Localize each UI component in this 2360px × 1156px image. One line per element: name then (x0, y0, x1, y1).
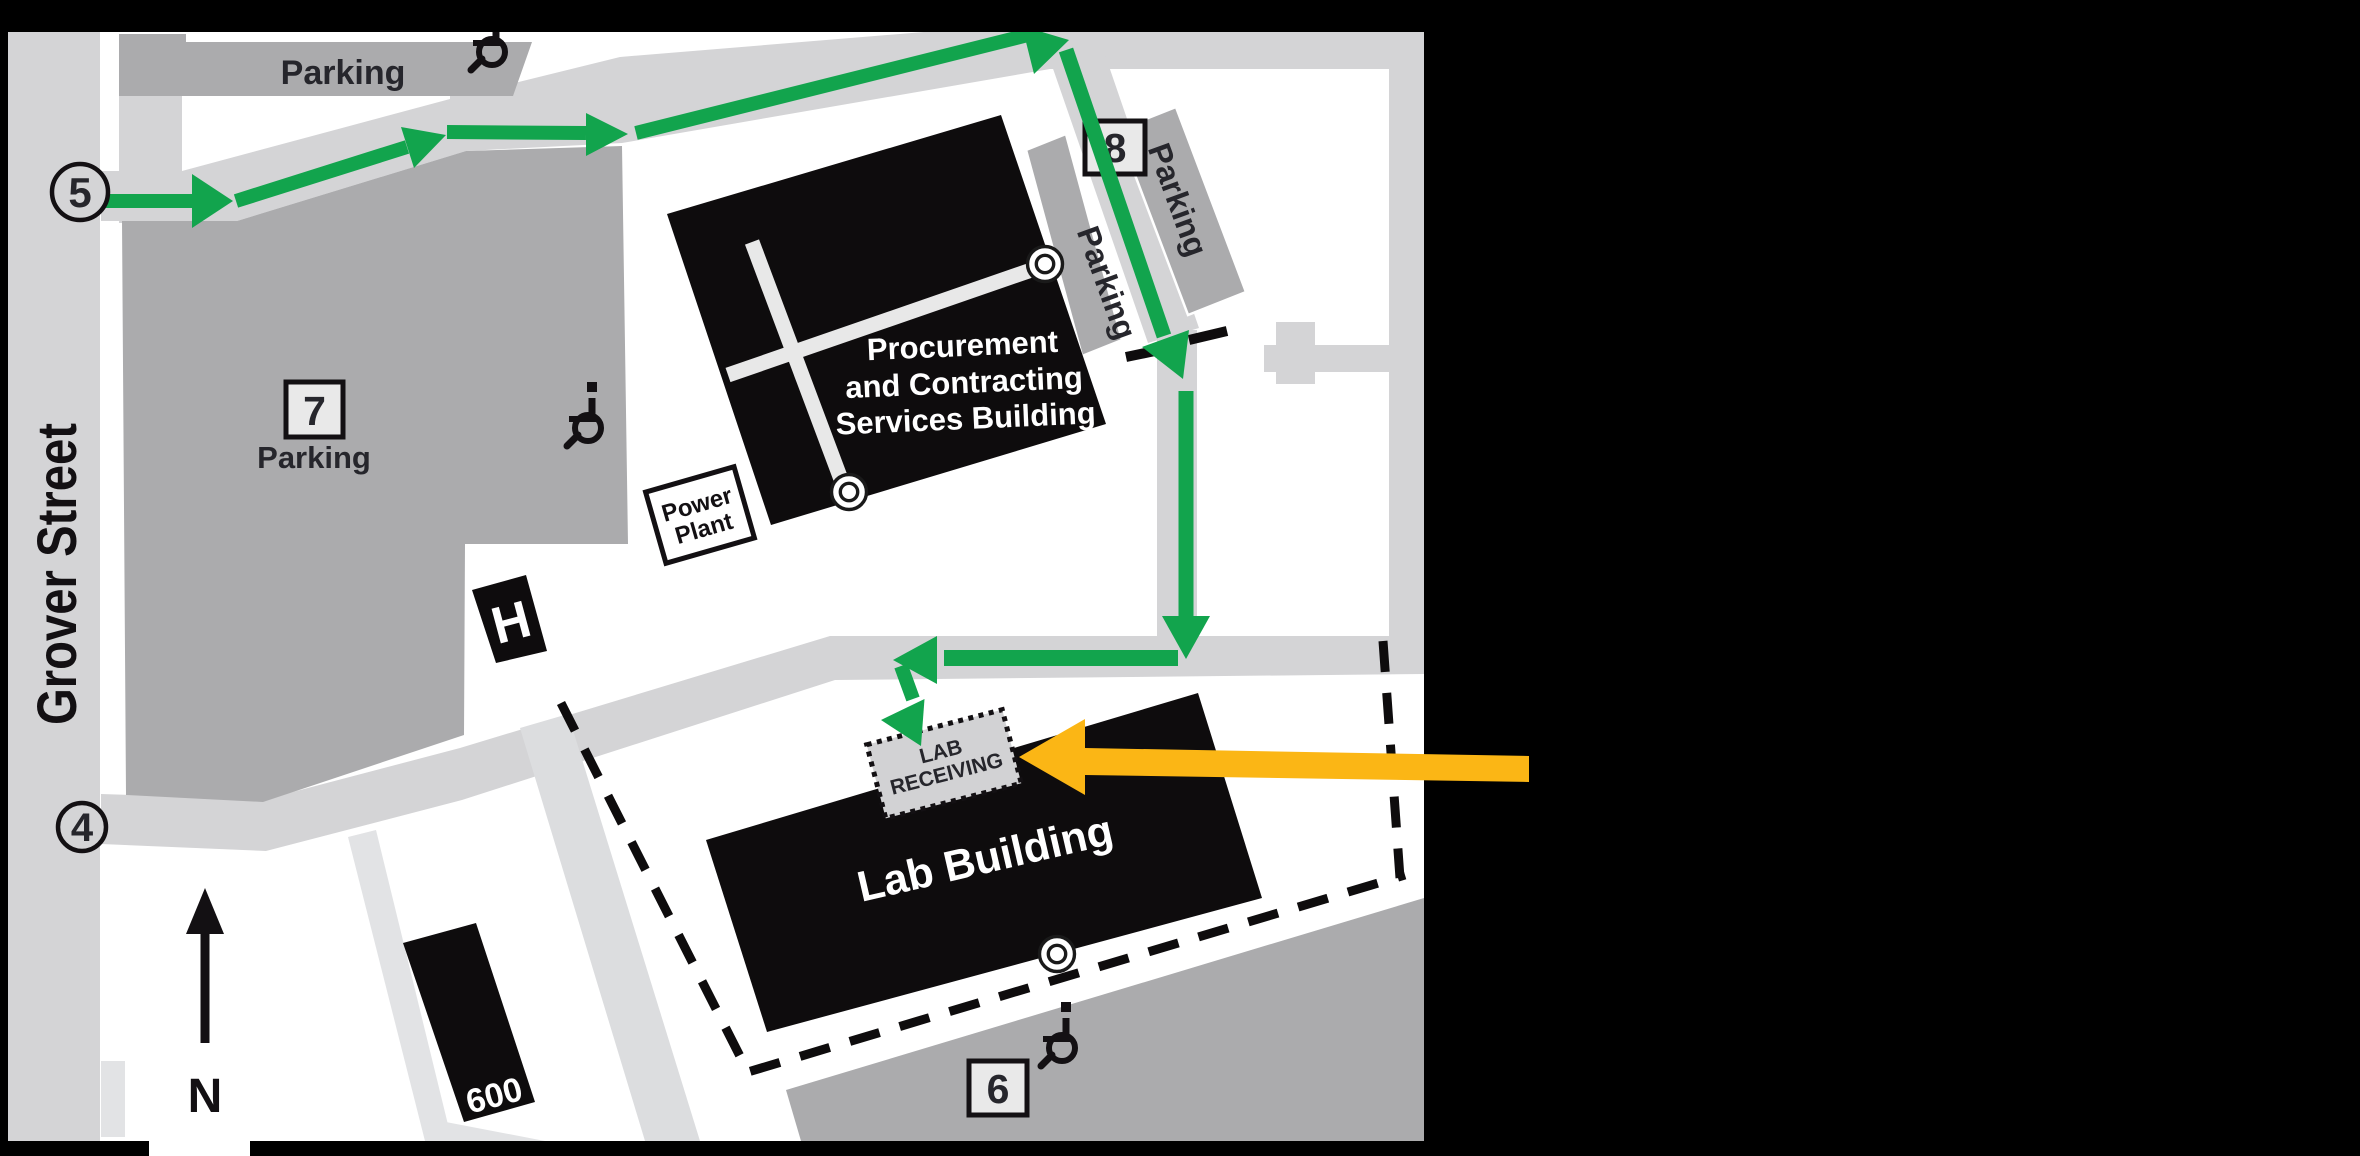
svg-text:6: 6 (987, 1066, 1010, 1112)
svg-text:7: 7 (303, 388, 326, 434)
svg-text:Parking: Parking (281, 54, 406, 92)
svg-text:N: N (188, 1070, 223, 1123)
svg-text:Parking: Parking (257, 440, 371, 475)
svg-text:4: 4 (71, 806, 94, 850)
svg-text:Grover Street: Grover Street (25, 423, 88, 725)
svg-text:5: 5 (68, 169, 91, 216)
